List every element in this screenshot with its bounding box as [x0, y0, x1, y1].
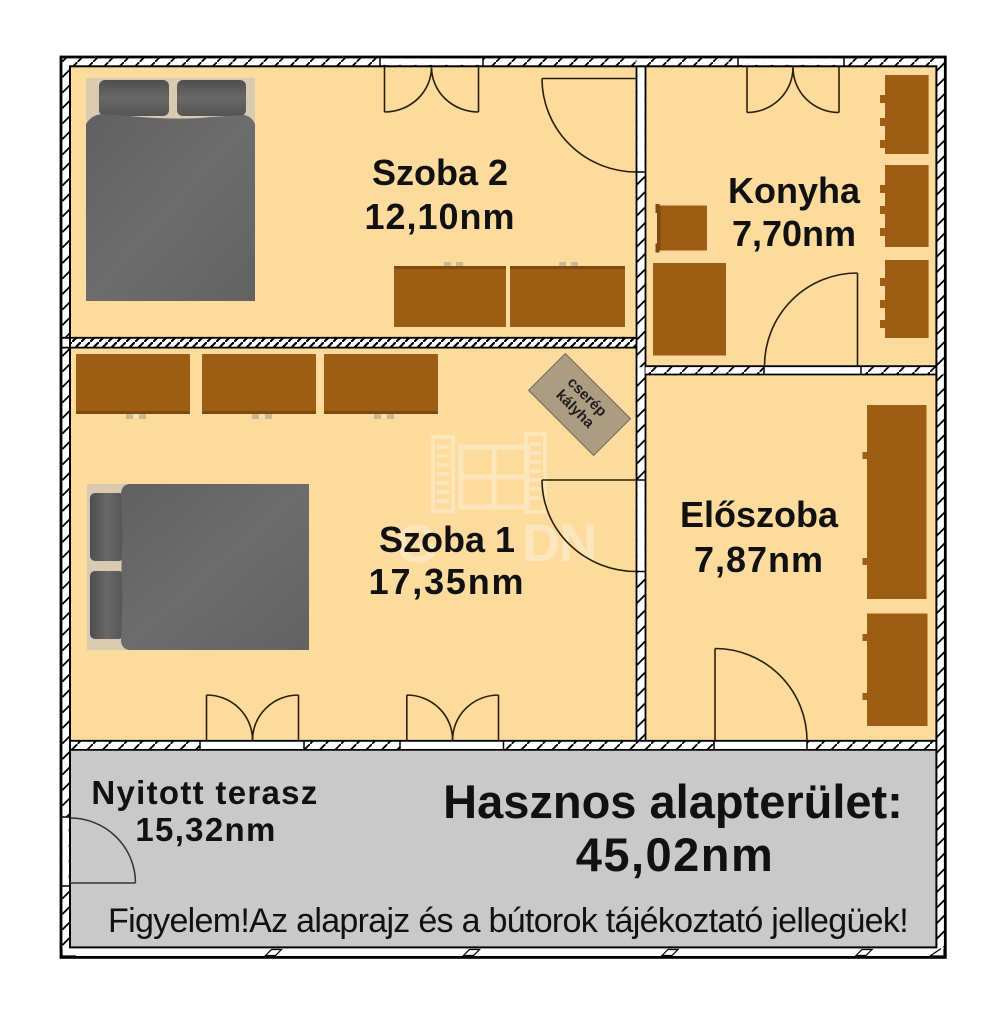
- svg-text:N: N: [559, 514, 597, 573]
- svg-text:7,70nm: 7,70nm: [732, 213, 856, 254]
- svg-text:Előszoba: Előszoba: [680, 494, 839, 535]
- svg-text:Hasznos alapterület:: Hasznos alapterület:: [443, 775, 903, 828]
- svg-text:Figyelem!Az alaprajz és a búto: Figyelem!Az alaprajz és a bútorok tájéko…: [108, 902, 908, 940]
- svg-text:17,35nm: 17,35nm: [369, 561, 526, 602]
- svg-text:15,32nm: 15,32nm: [135, 811, 276, 848]
- svg-text:7,87nm: 7,87nm: [694, 539, 824, 580]
- svg-text:Szoba 1: Szoba 1: [379, 519, 515, 560]
- svg-text:45,02nm: 45,02nm: [576, 828, 775, 881]
- svg-text:12,10nm: 12,10nm: [364, 196, 515, 237]
- svg-text:D: D: [522, 514, 560, 573]
- svg-text:Konyha: Konyha: [728, 170, 861, 211]
- svg-text:Szoba 2: Szoba 2: [372, 152, 508, 193]
- svg-text:Nyitott terasz: Nyitott terasz: [91, 774, 318, 811]
